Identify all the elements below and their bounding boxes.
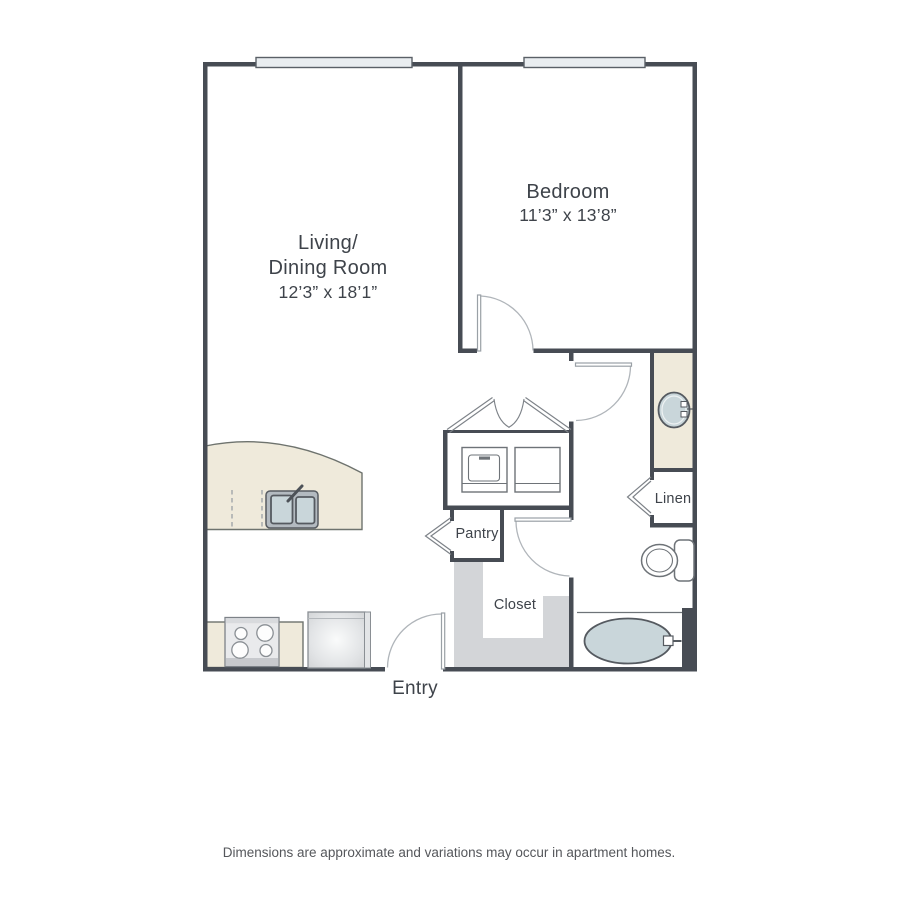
floor-plan: Living/ Dining Room 12’3” x 18’1” Bedroo…	[0, 0, 900, 900]
wall-laundry-bottom	[443, 506, 574, 511]
wall-bath-stub-top	[569, 353, 574, 361]
window-icon	[524, 58, 645, 68]
wall-linen-stub-top	[650, 472, 654, 480]
wall-bath-left-low	[569, 578, 574, 672]
laundry-fixtures	[462, 448, 560, 493]
bifold-door-icon	[447, 398, 571, 433]
bedroom-door-swing-icon	[478, 295, 534, 351]
entry-door-swing-icon	[388, 613, 445, 669]
closet-door-swing-icon	[515, 518, 571, 576]
wall-laundry-left	[443, 430, 448, 510]
bedroom-dimensions: 11’3” x 13’8”	[519, 205, 617, 225]
window-icon	[256, 58, 412, 68]
refrigerator-icon	[308, 612, 371, 668]
wall-pantry-bottom	[450, 558, 504, 562]
living-room-dimensions: 12’3” x 18’1”	[279, 282, 378, 302]
wall-bedroom-south-b	[534, 349, 698, 354]
wall-right	[693, 62, 698, 672]
wall-laundry-top	[443, 430, 574, 433]
bedroom-label: Bedroom	[526, 181, 609, 203]
pantry-label: Pantry	[455, 526, 499, 542]
living-room-label-line1: Living/	[298, 232, 358, 254]
living-room-label-line2: Dining Room	[269, 257, 388, 279]
floor-plan-page: Living/ Dining Room 12’3” x 18’1” Bedroo…	[0, 0, 900, 900]
walk-in-closet-floor	[454, 562, 569, 667]
bathroom-door-swing-icon	[576, 363, 632, 421]
wall-pantry-stub-bottom	[450, 551, 454, 562]
closet-door-chevron-icon	[426, 518, 452, 555]
wall-pantry-stub-top	[450, 510, 454, 521]
wall-bedroom-south-a	[458, 349, 477, 354]
entry-label: Entry	[392, 678, 438, 699]
kitchen-sink-icon	[266, 486, 318, 528]
disclaimer-text: Dimensions are approximate and variation…	[223, 845, 675, 860]
wall-pantry-right	[500, 510, 504, 562]
wall-vanity-left	[650, 353, 654, 468]
stove-icon	[225, 618, 279, 667]
dryer-icon	[515, 448, 560, 493]
closet-door-chevron-icon	[628, 477, 652, 517]
washer-icon	[462, 448, 507, 493]
wall-left	[203, 62, 208, 672]
wall-living-bedroom-divider	[458, 62, 463, 353]
wall-bath-left-mid	[569, 422, 574, 511]
wall-linen-bottom	[650, 523, 697, 528]
bathtub-icon	[585, 619, 682, 664]
linen-label: Linen	[655, 491, 691, 507]
wall-tub-block	[682, 608, 693, 667]
wall-linen-top	[650, 468, 697, 472]
toilet-icon	[642, 540, 695, 581]
closet-label: Closet	[494, 597, 536, 613]
